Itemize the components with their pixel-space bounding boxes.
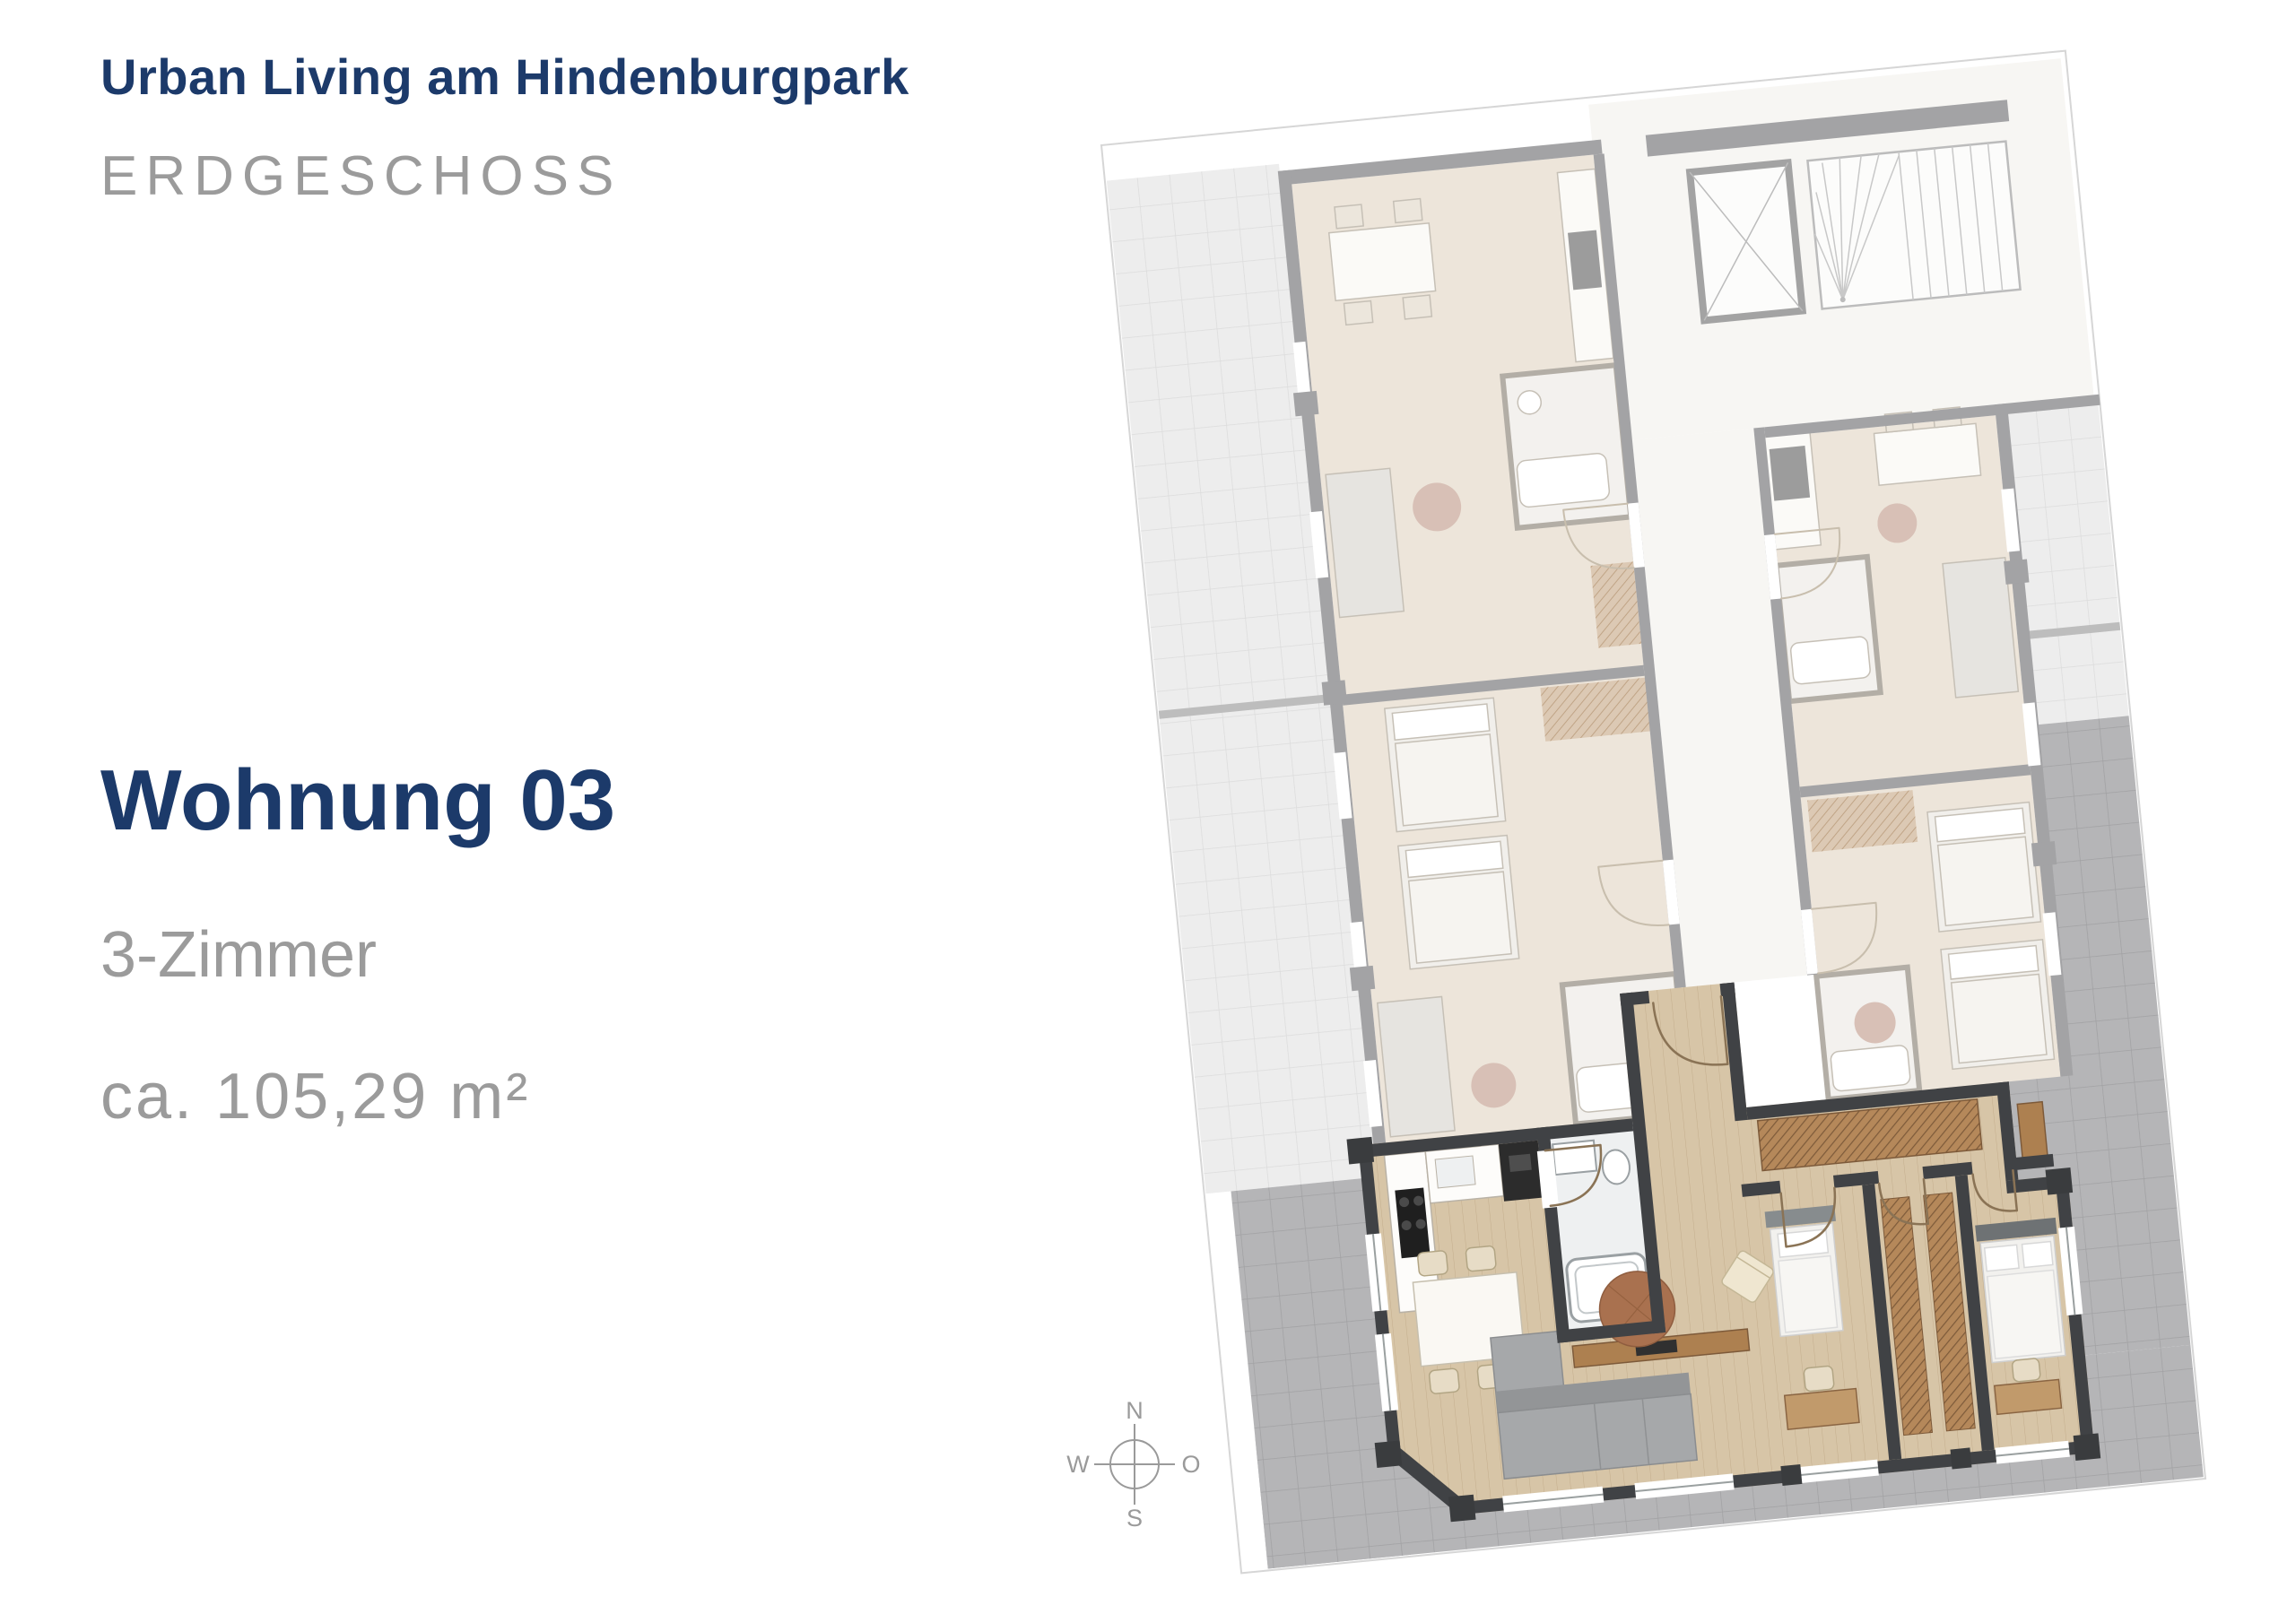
compass-east-label: O	[1181, 1451, 1200, 1478]
compass-icon: N W O S	[1066, 1397, 1200, 1532]
stairwell	[1690, 142, 2021, 321]
chair	[1465, 1245, 1496, 1271]
floorplan-sheet	[1101, 51, 2205, 1574]
desk	[1785, 1389, 1859, 1430]
floorplan-page: Urban Living am Hindenburgpark ERDGESCHO…	[0, 0, 2296, 1623]
floorplan-drawing: N W O S	[0, 0, 2296, 1623]
compass-north-label: N	[1126, 1397, 1144, 1424]
chair	[1804, 1366, 1834, 1392]
sink-icon	[1435, 1156, 1475, 1188]
desk	[1995, 1379, 2062, 1414]
compass-west-label: W	[1066, 1451, 1090, 1478]
chair	[2012, 1358, 2040, 1382]
stairs-icon	[1807, 142, 2020, 309]
chair	[1429, 1368, 1459, 1394]
chair	[1417, 1250, 1448, 1276]
compass-south-label: S	[1126, 1505, 1143, 1532]
